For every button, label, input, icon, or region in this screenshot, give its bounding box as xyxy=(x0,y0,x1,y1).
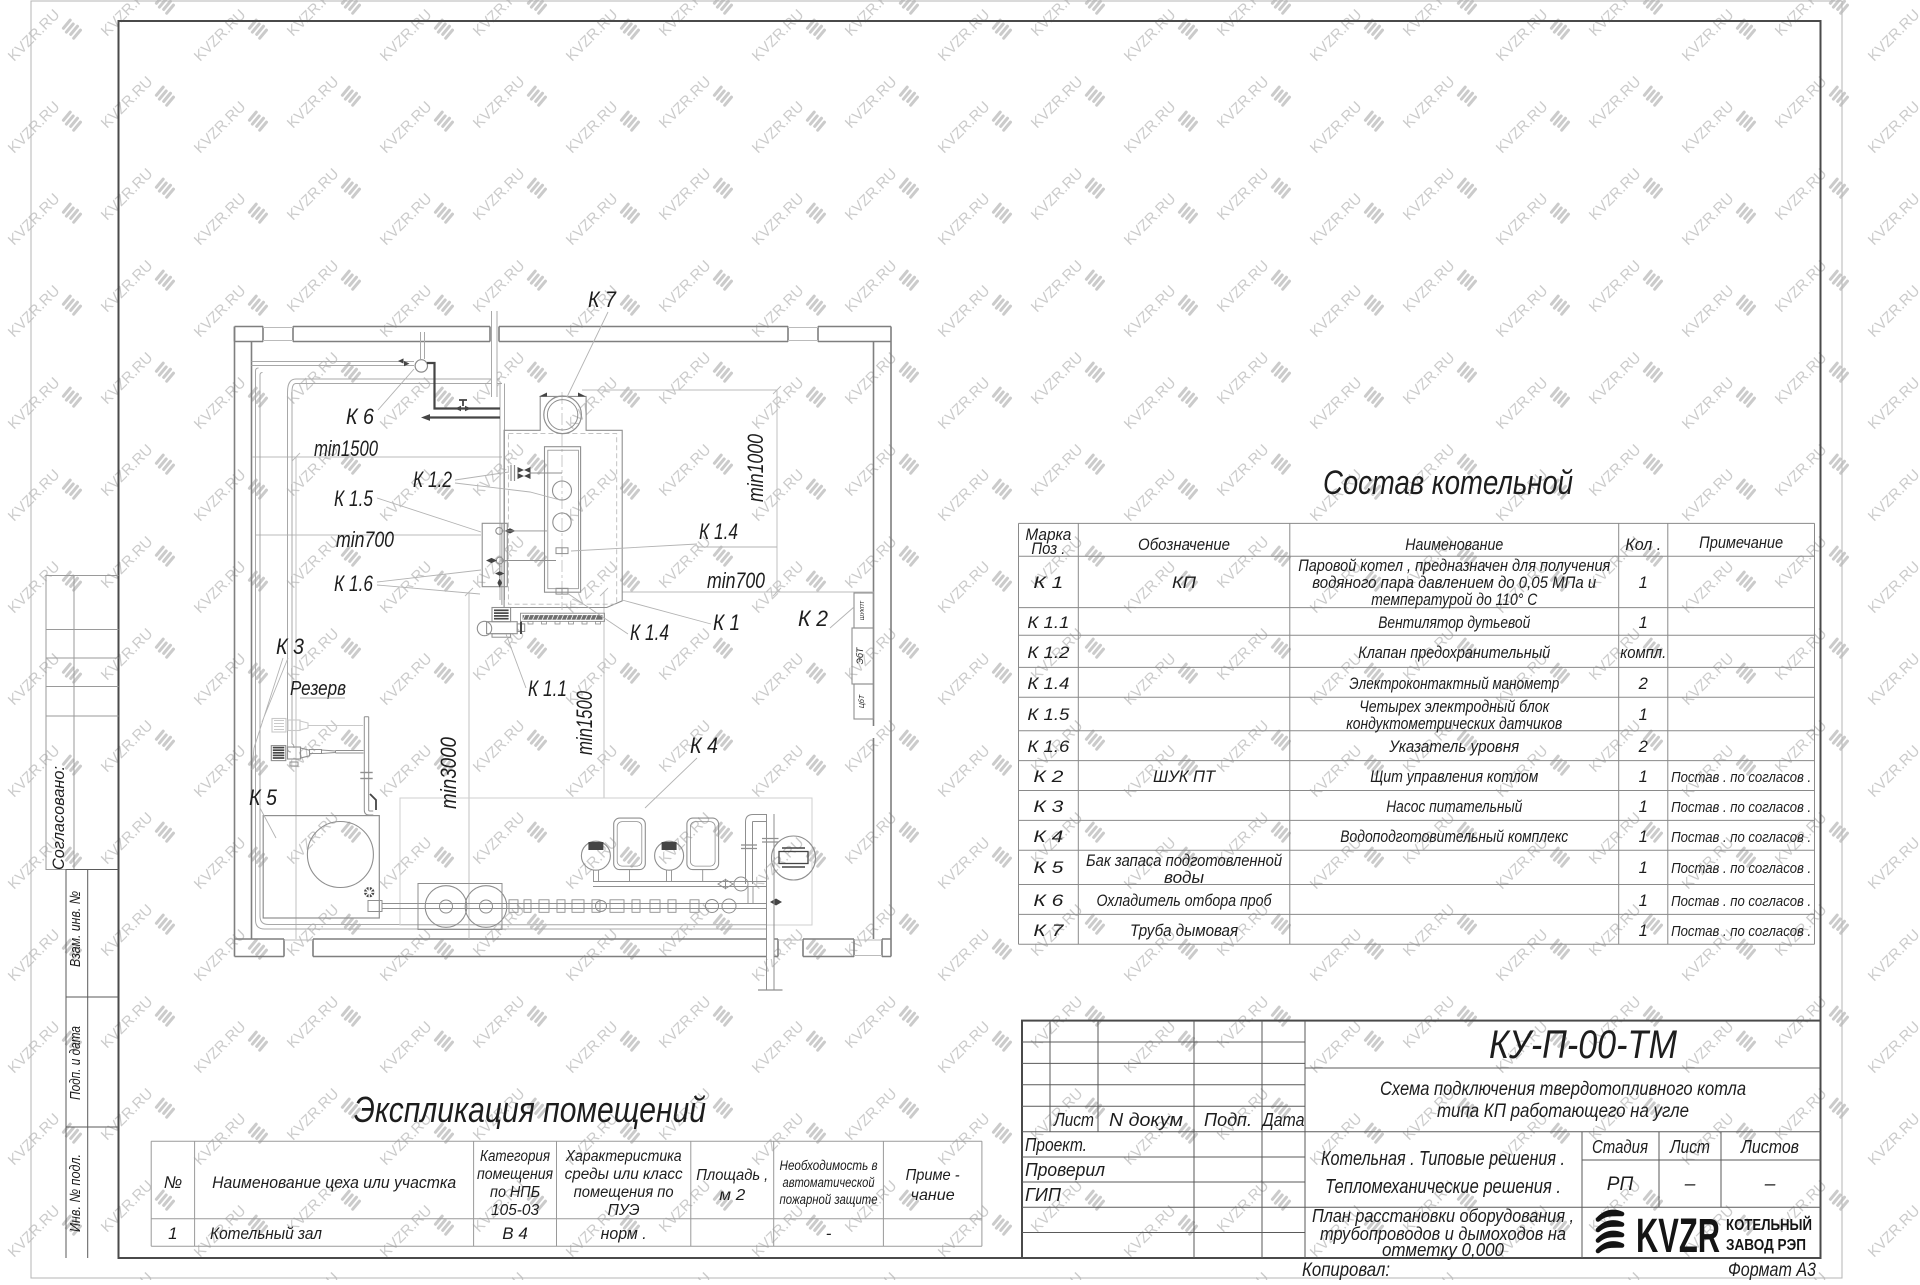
svg-text:К 6: К 6 xyxy=(1033,892,1064,910)
svg-text:автоматической: автоматической xyxy=(783,1175,875,1190)
svg-text:К 1.1: К 1.1 xyxy=(1027,614,1069,632)
svg-text:Водоподготовительный комплекс: Водоподготовительный комплекс xyxy=(1340,828,1569,846)
svg-text:РП: РП xyxy=(1607,1174,1634,1195)
svg-text:Тепломеханические решения .: Тепломеханические решения . xyxy=(1325,1176,1561,1198)
svg-text:Проект.: Проект. xyxy=(1025,1135,1087,1155)
svg-text:Четырех электродный блок: Четырех электродный блок xyxy=(1359,698,1550,716)
svg-text:ЭбТ: ЭбТ xyxy=(855,646,865,664)
svg-text:компл.: компл. xyxy=(1620,644,1666,662)
svg-text:Необходимость в: Необходимость в xyxy=(780,1158,878,1173)
svg-text:Указатель уровня: Указатель уровня xyxy=(1388,738,1519,756)
svg-text:Схема подключения твердотоплив: Схема подключения твердотопливного котла xyxy=(1380,1078,1746,1100)
svg-text:К 7: К 7 xyxy=(588,287,617,312)
svg-text:min700: min700 xyxy=(707,568,766,593)
svg-text:по НПБ: по НПБ xyxy=(490,1184,540,1201)
svg-text:температурой до 110° С: температурой до 110° С xyxy=(1371,591,1537,609)
svg-text:Категория: Категория xyxy=(480,1148,550,1165)
svg-text:Обозначение: Обозначение xyxy=(1138,536,1230,554)
svg-text:–: – xyxy=(1684,1174,1696,1195)
svg-text:отметку 0,000: отметку 0,000 xyxy=(1382,1239,1505,1260)
svg-text:кондуктометрических датчиков: кондуктометрических датчиков xyxy=(1346,715,1562,733)
svg-text:ШУК ПТ: ШУК ПТ xyxy=(1153,768,1217,786)
svg-text:Охладитель отбора проб: Охладитель отбора проб xyxy=(1097,892,1273,910)
svg-text:Щит управления котлом: Щит управления котлом xyxy=(1370,768,1538,786)
svg-text:2: 2 xyxy=(1638,738,1648,756)
svg-text:Электроконтактный манометр: Электроконтактный манометр xyxy=(1349,675,1559,693)
svg-text:К 1: К 1 xyxy=(713,610,740,635)
svg-text:К 1: К 1 xyxy=(1033,574,1063,592)
svg-text:Постав . по согласов .: Постав . по согласов . xyxy=(1671,829,1811,846)
svg-text:ПУЭ: ПУЭ xyxy=(608,1202,640,1219)
svg-text:min1500: min1500 xyxy=(572,690,597,755)
svg-text:Постав . по согласов .: Постав . по согласов . xyxy=(1671,769,1811,786)
svg-text:м 2: м 2 xyxy=(719,1187,745,1204)
svg-text:Постав . по согласов .: Постав . по согласов . xyxy=(1671,893,1811,910)
svg-text:пожарной защите: пожарной защите xyxy=(780,1192,878,1207)
svg-text:min1000: min1000 xyxy=(743,433,768,502)
svg-text:№: № xyxy=(164,1173,182,1192)
svg-text:К 6: К 6 xyxy=(346,404,375,429)
svg-text:ГИП: ГИП xyxy=(1025,1185,1062,1205)
svg-text:помещения: помещения xyxy=(477,1166,553,1183)
svg-text:К 1.6: К 1.6 xyxy=(334,571,374,596)
svg-text:min3000: min3000 xyxy=(436,736,461,809)
svg-text:Дата: Дата xyxy=(1261,1110,1305,1130)
svg-text:min700: min700 xyxy=(336,527,395,552)
svg-text:1: 1 xyxy=(1639,892,1648,910)
svg-text:Копировал:: Копировал: xyxy=(1302,1260,1390,1280)
svg-text:Резерв: Резерв xyxy=(290,678,346,700)
svg-text:Кол .: Кол . xyxy=(1625,536,1661,554)
svg-text:К 4: К 4 xyxy=(1033,828,1063,846)
svg-text:Приме -: Приме - xyxy=(906,1167,960,1184)
svg-text:Стадия: Стадия xyxy=(1592,1137,1648,1157)
svg-text:Поз .: Поз . xyxy=(1031,540,1065,558)
svg-text:водяного пара давлением до 0,: водяного пара давлением до 0,05 МПа и xyxy=(1312,574,1596,592)
svg-text:1: 1 xyxy=(1639,614,1648,632)
svg-text:К 4: К 4 xyxy=(690,733,718,758)
svg-text:К 1.5: К 1.5 xyxy=(1027,706,1070,724)
svg-text:1: 1 xyxy=(168,1224,177,1243)
svg-text:среды или класс: среды или класс xyxy=(565,1166,683,1183)
svg-text:К 1.4: К 1.4 xyxy=(630,620,669,645)
svg-text:Согласовано:: Согласовано: xyxy=(49,766,68,870)
svg-text:1: 1 xyxy=(1639,828,1648,846)
svg-text:Постав . по согласов .: Постав . по согласов . xyxy=(1671,923,1811,940)
svg-text:-: - xyxy=(826,1224,832,1243)
svg-text:Характеристика: Характеристика xyxy=(565,1148,682,1165)
svg-text:норм .: норм . xyxy=(601,1224,647,1243)
svg-text:Состав котельной: Состав котельной xyxy=(1323,464,1573,502)
svg-text:К 1.6: К 1.6 xyxy=(1027,738,1070,756)
svg-text:1: 1 xyxy=(1639,768,1648,786)
svg-text:1: 1 xyxy=(1639,798,1648,816)
svg-text:2: 2 xyxy=(1638,675,1648,693)
svg-text:КОТЕЛЬНЫЙ: КОТЕЛЬНЫЙ xyxy=(1726,1215,1812,1234)
svg-text:Насос питательный: Насос питательный xyxy=(1386,798,1522,816)
svg-text:Проверил: Проверил xyxy=(1025,1160,1105,1180)
svg-text:Наименование: Наименование xyxy=(1405,536,1503,554)
svg-text:1: 1 xyxy=(1639,859,1648,877)
svg-text:–: – xyxy=(1764,1174,1776,1195)
svg-text:К 1.2: К 1.2 xyxy=(413,467,452,492)
svg-text:К 5: К 5 xyxy=(249,785,278,810)
svg-text:ЦбТ: ЦбТ xyxy=(858,694,866,708)
svg-text:Бак запаса подготовленной: Бак запаса подготовленной xyxy=(1086,852,1282,870)
svg-text:Наименование цеха или участка: Наименование цеха или участка xyxy=(212,1173,456,1192)
svg-text:Взам. инв. №: Взам. инв. № xyxy=(67,891,84,967)
svg-text:1: 1 xyxy=(1639,574,1648,592)
svg-text:воды: воды xyxy=(1164,869,1204,887)
svg-text:К 1.1: К 1.1 xyxy=(528,676,567,701)
svg-text:К 1.2: К 1.2 xyxy=(1027,644,1069,662)
svg-text:Постав . по согласов .: Постав . по согласов . xyxy=(1671,860,1811,877)
svg-text:ЗАВОД РЭП: ЗАВОД РЭП xyxy=(1726,1237,1806,1254)
svg-text:Подп.: Подп. xyxy=(1204,1110,1252,1130)
svg-text:К 3: К 3 xyxy=(276,634,305,659)
svg-text:Экспликация помещений: Экспликация помещений xyxy=(354,1089,706,1130)
svg-text:К 2: К 2 xyxy=(1033,768,1063,786)
svg-text:К 1.4: К 1.4 xyxy=(699,519,738,544)
svg-text:Листов: Листов xyxy=(1740,1137,1799,1157)
svg-text:Труба дымовая: Труба дымовая xyxy=(1130,922,1238,940)
svg-text:К 1.5: К 1.5 xyxy=(334,486,374,511)
svg-text:Лист: Лист xyxy=(1053,1110,1094,1130)
svg-text:КП: КП xyxy=(1172,574,1196,592)
svg-text:Площадь ,: Площадь , xyxy=(696,1167,768,1184)
svg-text:чание: чание xyxy=(911,1187,955,1204)
svg-text:Паровой котел , предназначен д: Паровой котел , предназначен для получен… xyxy=(1298,557,1610,575)
svg-text:КУ-П-00-ТМ: КУ-П-00-ТМ xyxy=(1489,1023,1678,1067)
svg-text:помещения по: помещения по xyxy=(574,1184,674,1201)
svg-text:К 3: К 3 xyxy=(1033,798,1064,816)
svg-text:типа КП работающего на угле: типа КП работающего на угле xyxy=(1437,1100,1689,1122)
svg-text:N докум: N докум xyxy=(1109,1110,1183,1130)
svg-text:В 4: В 4 xyxy=(502,1224,528,1243)
svg-text:Вентилятор дутьевой: Вентилятор дутьевой xyxy=(1378,614,1530,632)
svg-text:KVZR: KVZR xyxy=(1636,1210,1720,1263)
svg-text:min1500: min1500 xyxy=(314,436,379,461)
svg-text:К 1.4: К 1.4 xyxy=(1027,675,1069,693)
svg-text:ШУКПТ: ШУКПТ xyxy=(860,600,866,620)
svg-text:Постав . по согласов .: Постав . по согласов . xyxy=(1671,799,1811,816)
svg-text:Котельный зал: Котельный зал xyxy=(210,1224,322,1243)
svg-text:Клапан предохранительный: Клапан предохранительный xyxy=(1358,644,1550,662)
svg-text:105-03: 105-03 xyxy=(491,1202,539,1219)
svg-text:Лист: Лист xyxy=(1669,1137,1710,1157)
svg-text:1: 1 xyxy=(1639,922,1648,940)
svg-text:1: 1 xyxy=(1639,706,1648,724)
svg-text:Котельная . Типовые решения .: Котельная . Типовые решения . xyxy=(1321,1148,1565,1170)
svg-text:Подп. и дата: Подп. и дата xyxy=(67,1026,84,1100)
svg-text:К 5: К 5 xyxy=(1033,859,1064,877)
svg-text:К 2: К 2 xyxy=(798,606,828,631)
svg-text:Инв. № подл.: Инв. № подл. xyxy=(67,1154,84,1232)
svg-text:Примечание: Примечание xyxy=(1699,534,1783,552)
svg-text:Формат А3: Формат А3 xyxy=(1728,1260,1816,1280)
svg-text:К 7: К 7 xyxy=(1033,922,1064,940)
